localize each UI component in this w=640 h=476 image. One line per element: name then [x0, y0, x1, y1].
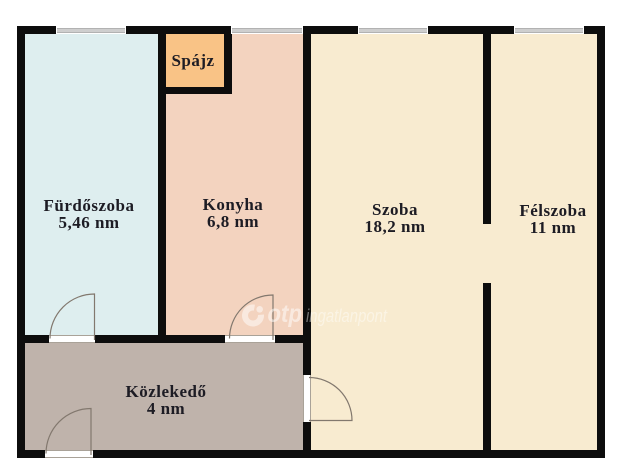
- svg-text:otp: otp: [268, 300, 303, 328]
- svg-text:ingatlanpont: ingatlanpont: [306, 305, 388, 326]
